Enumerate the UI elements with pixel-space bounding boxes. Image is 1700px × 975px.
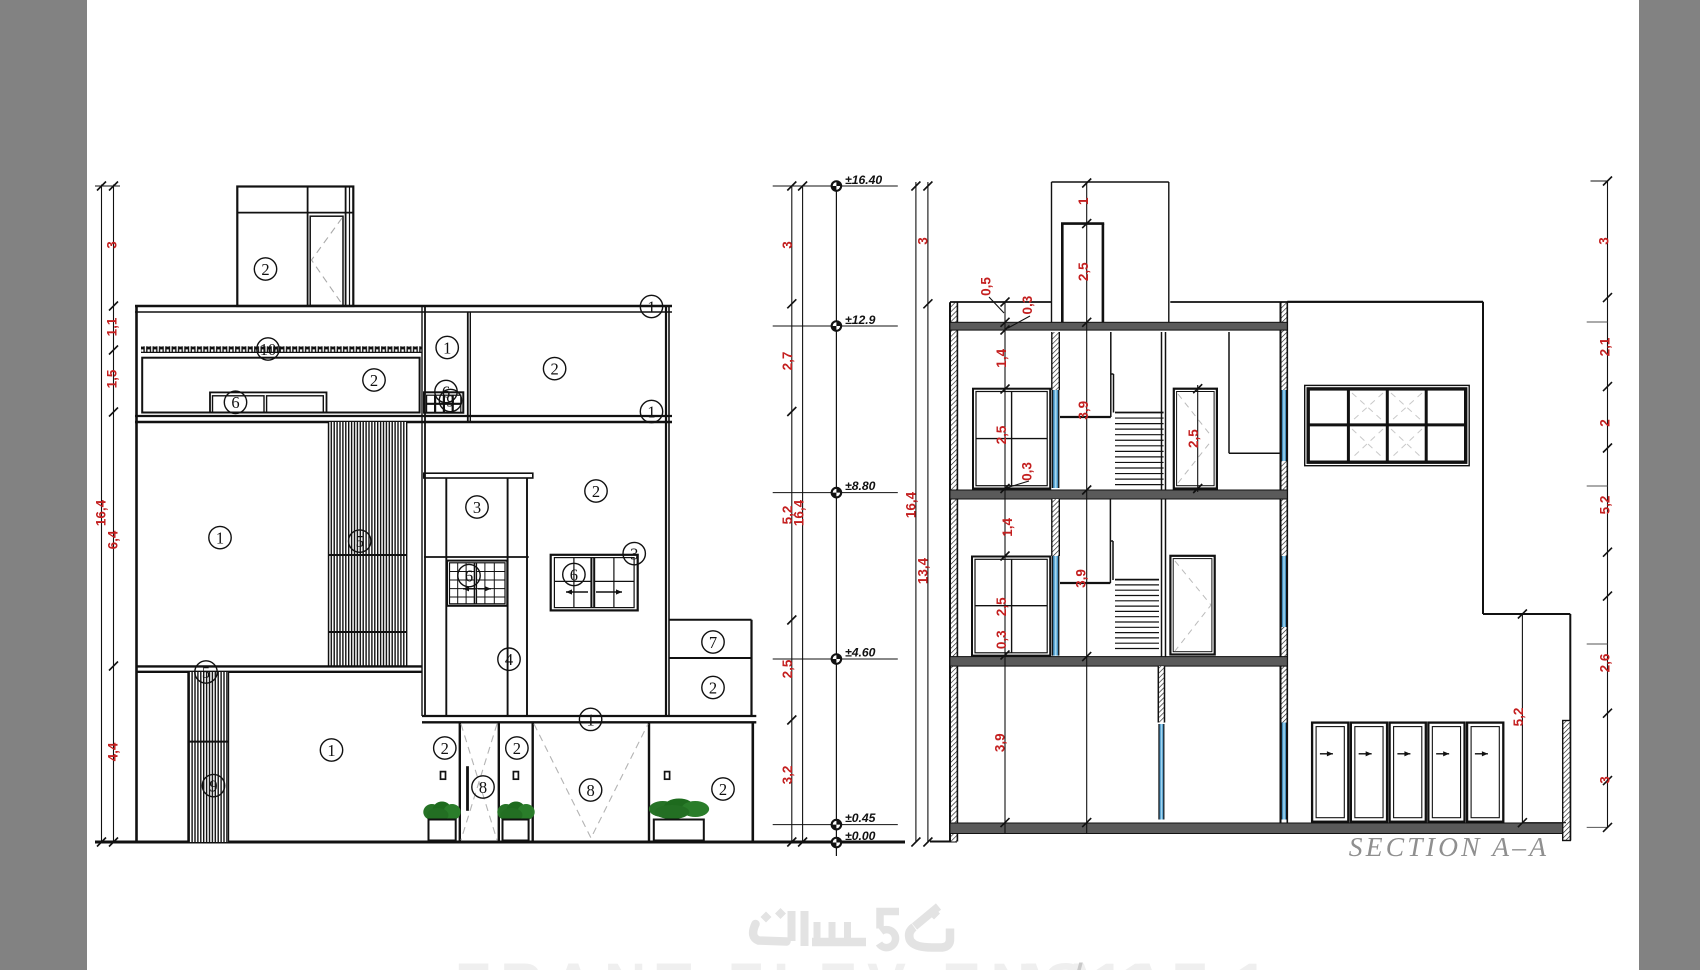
svg-text:2: 2: [592, 482, 600, 501]
svg-text:2,5: 2,5: [994, 597, 1009, 616]
svg-text:3: 3: [780, 241, 795, 249]
svg-text:3: 3: [1596, 237, 1611, 245]
svg-text:1,4: 1,4: [1000, 518, 1015, 537]
svg-text:SECTION A–A: SECTION A–A: [1349, 831, 1549, 862]
svg-text:0,3: 0,3: [1020, 295, 1035, 314]
svg-text:16,4: 16,4: [903, 491, 918, 518]
svg-text:2: 2: [1597, 419, 1612, 427]
svg-text:3: 3: [630, 545, 638, 564]
svg-text:16,4: 16,4: [791, 499, 806, 526]
svg-text:1,4: 1,4: [994, 348, 1009, 367]
svg-text:3,9: 3,9: [1074, 569, 1089, 588]
svg-text:/: /: [1070, 954, 1083, 970]
svg-text:2: 2: [441, 739, 449, 758]
svg-text:6: 6: [465, 567, 473, 586]
svg-text:1: 1: [586, 710, 594, 729]
svg-text:2: 2: [709, 678, 717, 697]
svg-text:5,2: 5,2: [1597, 496, 1612, 515]
svg-text:13,4: 13,4: [915, 557, 930, 584]
svg-text:0,3: 0,3: [1020, 462, 1035, 481]
svg-text:3,9: 3,9: [1076, 401, 1091, 420]
svg-text:3: 3: [915, 237, 930, 245]
svg-text:2: 2: [370, 371, 378, 390]
svg-text:±0.45: ±0.45: [845, 811, 876, 825]
svg-text:2: 2: [261, 260, 269, 279]
svg-text:3,9: 3,9: [992, 733, 1007, 752]
svg-text:2,5: 2,5: [780, 659, 795, 678]
svg-text:3,2: 3,2: [780, 766, 795, 785]
svg-text:2: 2: [550, 360, 558, 379]
svg-text:6: 6: [570, 565, 578, 584]
svg-text:0,3: 0,3: [994, 630, 1009, 649]
svg-text:3: 3: [473, 498, 481, 517]
svg-text:4: 4: [505, 650, 513, 669]
svg-text:1,5: 1,5: [104, 369, 119, 388]
svg-text:0,5: 0,5: [978, 277, 993, 296]
svg-text:8: 8: [479, 778, 487, 797]
svg-text:3: 3: [104, 241, 119, 249]
svg-text:1,1: 1,1: [104, 317, 119, 336]
svg-text:4,4: 4,4: [105, 742, 120, 761]
svg-text:1: 1: [647, 297, 655, 316]
svg-text:1: 1: [216, 529, 224, 548]
svg-text:2: 2: [719, 780, 727, 799]
svg-text:1: 1: [1076, 197, 1091, 205]
svg-text:2,1: 2,1: [1597, 337, 1612, 356]
svg-text:6,4: 6,4: [105, 530, 120, 549]
svg-text:2: 2: [513, 739, 521, 758]
svg-text:5,2: 5,2: [1511, 708, 1526, 727]
svg-text:2,5: 2,5: [1076, 262, 1091, 281]
svg-text:11: 11: [1092, 952, 1153, 970]
svg-text:FRANT FLEV ENG: FRANT FLEV ENG: [455, 952, 1098, 970]
svg-text:2,6: 2,6: [1597, 653, 1612, 672]
svg-text:9: 9: [446, 391, 454, 410]
svg-text:5: 5: [356, 532, 364, 551]
svg-text:6: 6: [231, 393, 239, 412]
svg-text:7: 7: [709, 633, 717, 652]
svg-text:3: 3: [1597, 776, 1612, 784]
svg-text:2,5: 2,5: [994, 425, 1009, 444]
svg-text:8: 8: [586, 781, 594, 800]
svg-text:2,5: 2,5: [1186, 429, 1201, 448]
svg-text:1: 1: [327, 741, 335, 760]
svg-text:1: 1: [647, 402, 655, 421]
svg-text:1: 1: [443, 338, 451, 357]
svg-text:2,7: 2,7: [780, 352, 795, 371]
svg-text:±0.00: ±0.00: [845, 829, 876, 843]
svg-text:9: 9: [209, 777, 217, 796]
svg-text:±12.9: ±12.9: [845, 313, 876, 327]
svg-text:5: 5: [202, 663, 210, 682]
svg-text:10: 10: [260, 340, 277, 359]
svg-text:±16.40: ±16.40: [845, 173, 882, 187]
svg-text:16,4: 16,4: [93, 499, 108, 526]
svg-text:±4.60: ±4.60: [845, 646, 876, 660]
svg-text:±8.80: ±8.80: [845, 479, 876, 493]
